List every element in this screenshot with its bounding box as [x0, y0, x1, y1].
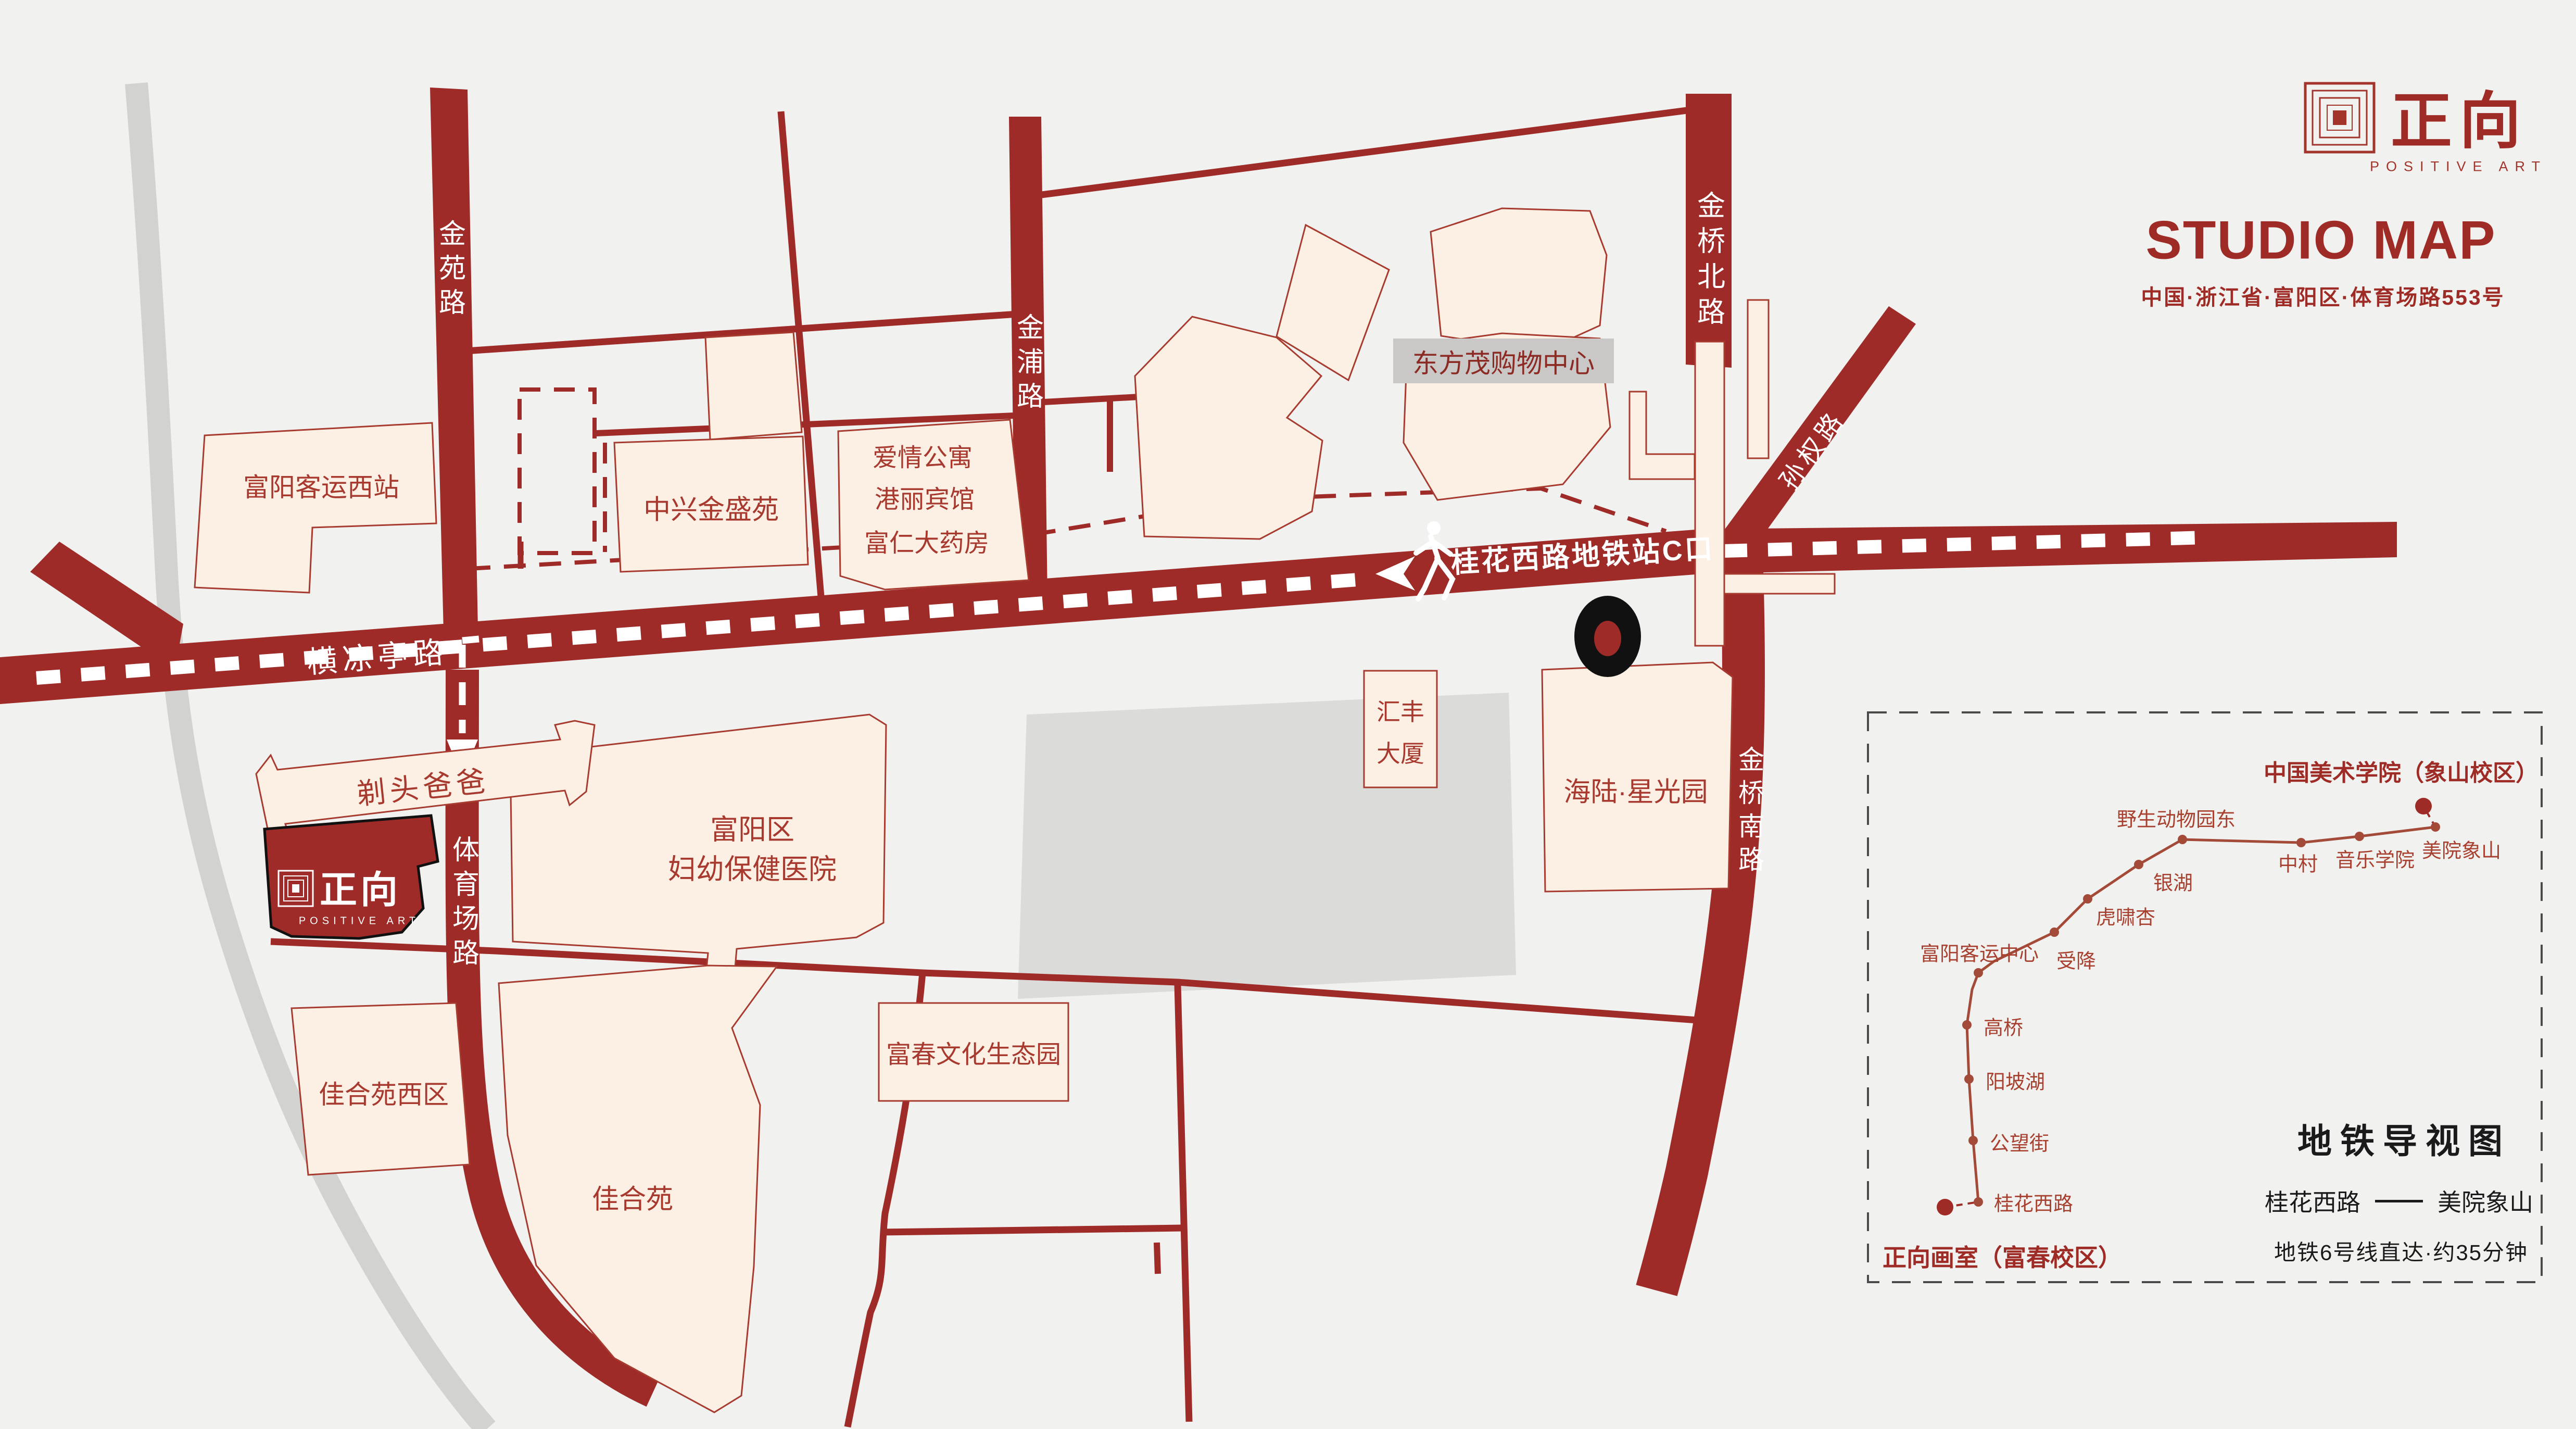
route-from: 桂花西路 [2265, 1184, 2360, 1218]
page-title: STUDIO MAP [2146, 210, 2496, 272]
studio-address: 中国·浙江省·富阳区·体育场路553号 [2141, 280, 2505, 311]
subway-diagram-title: 地铁导视图 [2297, 1113, 2511, 1163]
road-jinyuan [430, 87, 478, 632]
building-label-fuchun-park: 富春文化生态园 [886, 1034, 1061, 1070]
building-label-huifeng-line1: 汇丰 [1377, 693, 1424, 728]
building-label-jiaheyuan-west: 佳合苑西区 [319, 1074, 449, 1111]
road-label-jinqiao-north: 金桥北路 [1688, 191, 1729, 332]
metro-exit-marker [1574, 596, 1641, 677]
studio-marker-name: 正向 [320, 859, 401, 914]
building-dongfangmao-c [1135, 317, 1322, 539]
station-label: 音乐学院 [2335, 844, 2415, 873]
station-label: 阳坡湖 [1986, 1066, 2045, 1095]
station-label: 银湖 [2153, 867, 2193, 896]
building-label-hailu: 海陆·星光园 [1563, 770, 1708, 809]
brand-name-en: POSITIVE ART [2370, 159, 2547, 175]
road-label-tiyuchang: 体育场路 [444, 835, 483, 973]
route-dash-icon [2375, 1200, 2423, 1202]
building-huifeng [1364, 671, 1437, 787]
building-unlabeled [705, 332, 802, 440]
station-label: 高桥 [1984, 1012, 2023, 1041]
studio-map-poster: 横凉亭路 桂花西路地铁站C口 金苑路 体育场路 金浦路 金桥北路 金桥南路 孙权… [0, 0, 2576, 1429]
origin-dot [1937, 1199, 1953, 1215]
gray-block [1018, 693, 1516, 999]
road-label-jinpu: 金浦路 [1008, 313, 1047, 416]
studio-marker-name-en: POSITIVE ART [299, 916, 420, 927]
subway-route: 桂花西路 美院象山 [2265, 1184, 2533, 1218]
dashed-building-outline [520, 390, 605, 553]
studio-logo-icon [279, 871, 313, 906]
building-label-pharmacy: 富仁大药房 [864, 522, 989, 559]
route-to: 美院象山 [2438, 1184, 2533, 1218]
station-label: 富阳客运中心 [1920, 938, 2039, 967]
building-label-huifeng-line2: 大厦 [1377, 735, 1424, 769]
building-fuyang-west-bus [195, 423, 436, 593]
subway-duration: 地铁6号线直达·约35分钟 [2274, 1235, 2528, 1267]
building-label-hotel: 港丽宾馆 [875, 479, 975, 515]
subway-destination-label: 中国美术学院（象山校区） [2264, 754, 2539, 787]
building-label-jiaheyuan: 佳合苑 [592, 1177, 673, 1217]
subway-origin-label: 正向画室（富春校区） [1883, 1239, 2122, 1273]
building-label-zhongxing: 中兴金盛苑 [643, 488, 779, 527]
station-label: 中村 [2278, 848, 2318, 877]
building-label-apartment: 爱情公寓 [873, 437, 973, 473]
station-label: 公望街 [1990, 1127, 2049, 1156]
station-label: 野生动物园东 [2117, 804, 2236, 832]
road-label-jinqiao-south: 金桥南路 [1731, 746, 1768, 879]
destination-dot [2415, 798, 2432, 814]
building-dongfangmao-b [1431, 208, 1607, 352]
road-label-jinyuan: 金苑路 [431, 219, 470, 322]
building-label-dongfangmao: 东方茂购物中心 [1412, 343, 1595, 380]
building-label-fuyang-west-bus: 富阳客运西站 [243, 467, 399, 504]
station-label: 受降 [2056, 945, 2096, 974]
station-label: 美院象山 [2422, 835, 2501, 863]
building-label-hospital-line2: 妇幼保健医院 [668, 846, 837, 887]
building-label-hospital-line1: 富阳区 [710, 807, 794, 848]
brand-name: 正向 [2391, 71, 2528, 160]
tiyuchang-arrow-nub [462, 639, 479, 641]
station-label: 桂花西路 [1994, 1188, 2073, 1217]
station-label: 虎啸杏 [2096, 901, 2155, 930]
brand-logo-icon [2305, 83, 2374, 152]
